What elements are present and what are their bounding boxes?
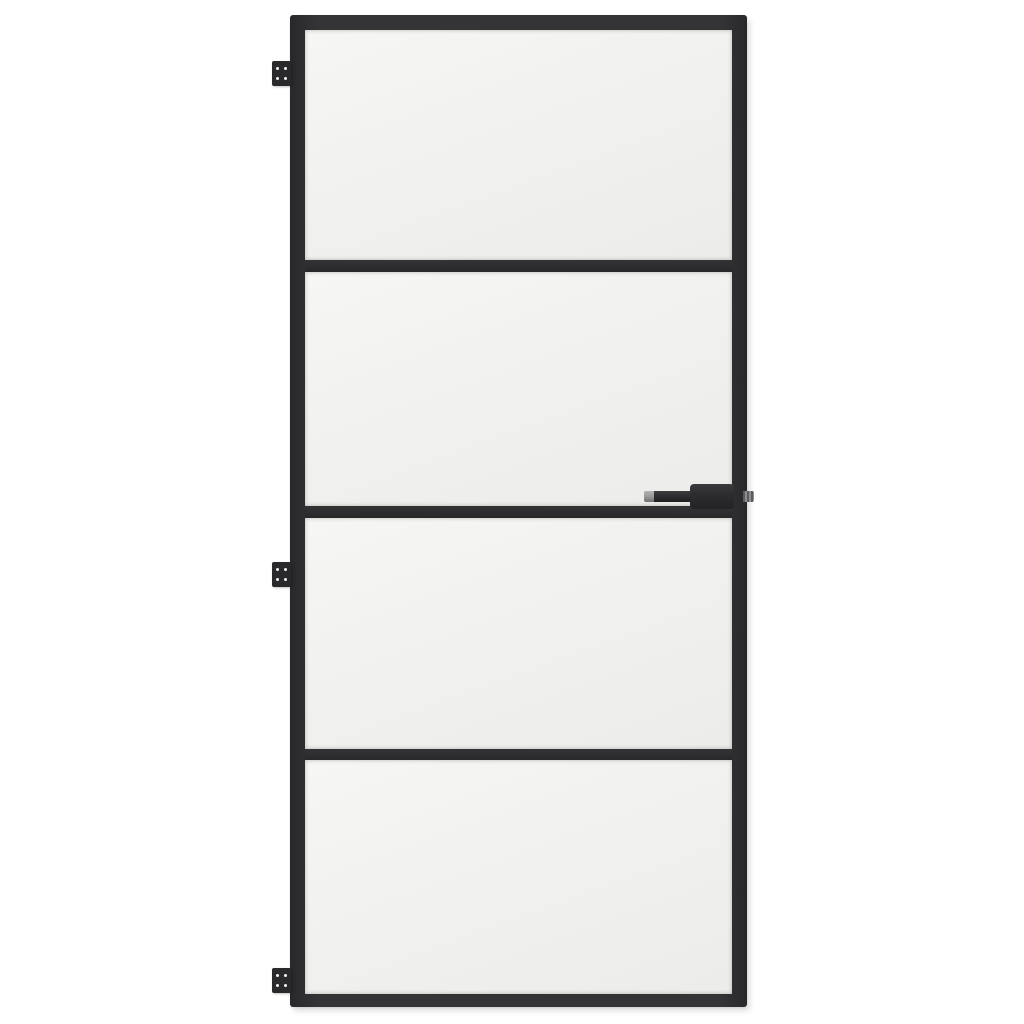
- hinge-screw: [284, 984, 287, 987]
- hinge-screw: [284, 578, 287, 581]
- hinge-screw: [276, 578, 279, 581]
- handle-base: [690, 484, 734, 509]
- door: [290, 15, 747, 1007]
- hinge-screw: [276, 974, 279, 977]
- hinge-screw: [284, 974, 287, 977]
- glass-area: [305, 30, 732, 994]
- hinge-screw: [276, 77, 279, 80]
- product-photo: [0, 0, 1024, 1024]
- glass-panel-4: [305, 760, 732, 994]
- hinge-top: [272, 61, 291, 86]
- hinge-screw: [276, 568, 279, 571]
- hinge-bottom: [272, 968, 291, 993]
- muntin-1: [305, 260, 732, 272]
- muntin-2: [305, 506, 732, 518]
- muntin-3: [305, 749, 732, 760]
- hinge-screw: [276, 984, 279, 987]
- hinge-screw: [284, 77, 287, 80]
- glass-panel-3: [305, 518, 732, 749]
- hinge-middle: [272, 562, 291, 587]
- glass-panel-1: [305, 30, 732, 260]
- hinge-screw: [284, 568, 287, 571]
- handle-spindle: [743, 491, 754, 502]
- hinge-screw: [284, 67, 287, 70]
- glass-panel-2: [305, 272, 732, 506]
- hinge-screw: [276, 67, 279, 70]
